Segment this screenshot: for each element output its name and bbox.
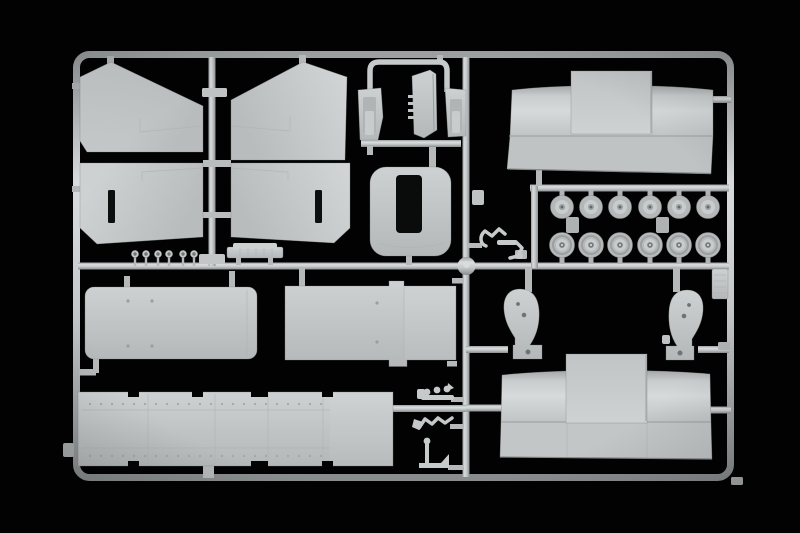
sprue-photo: [0, 0, 800, 533]
photo-vignette: [0, 0, 800, 533]
